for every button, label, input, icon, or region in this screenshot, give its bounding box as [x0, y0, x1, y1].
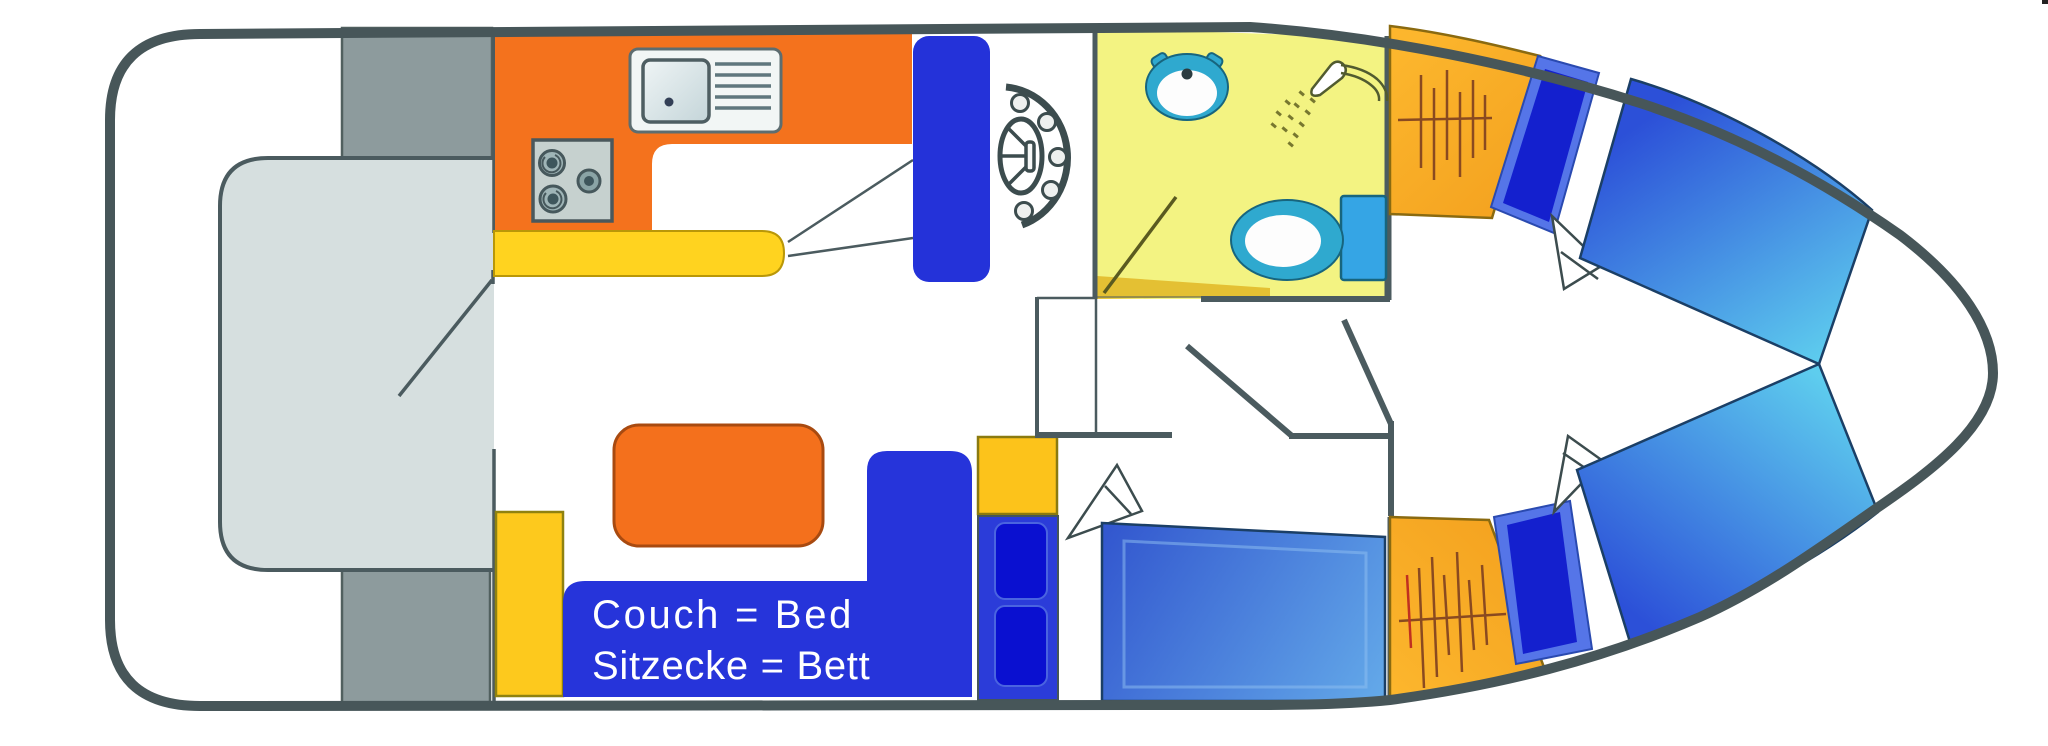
svg-text:Sitzecke = Bett: Sitzecke = Bett	[592, 644, 870, 688]
svg-text:Couch = Bed: Couch = Bed	[592, 593, 854, 637]
